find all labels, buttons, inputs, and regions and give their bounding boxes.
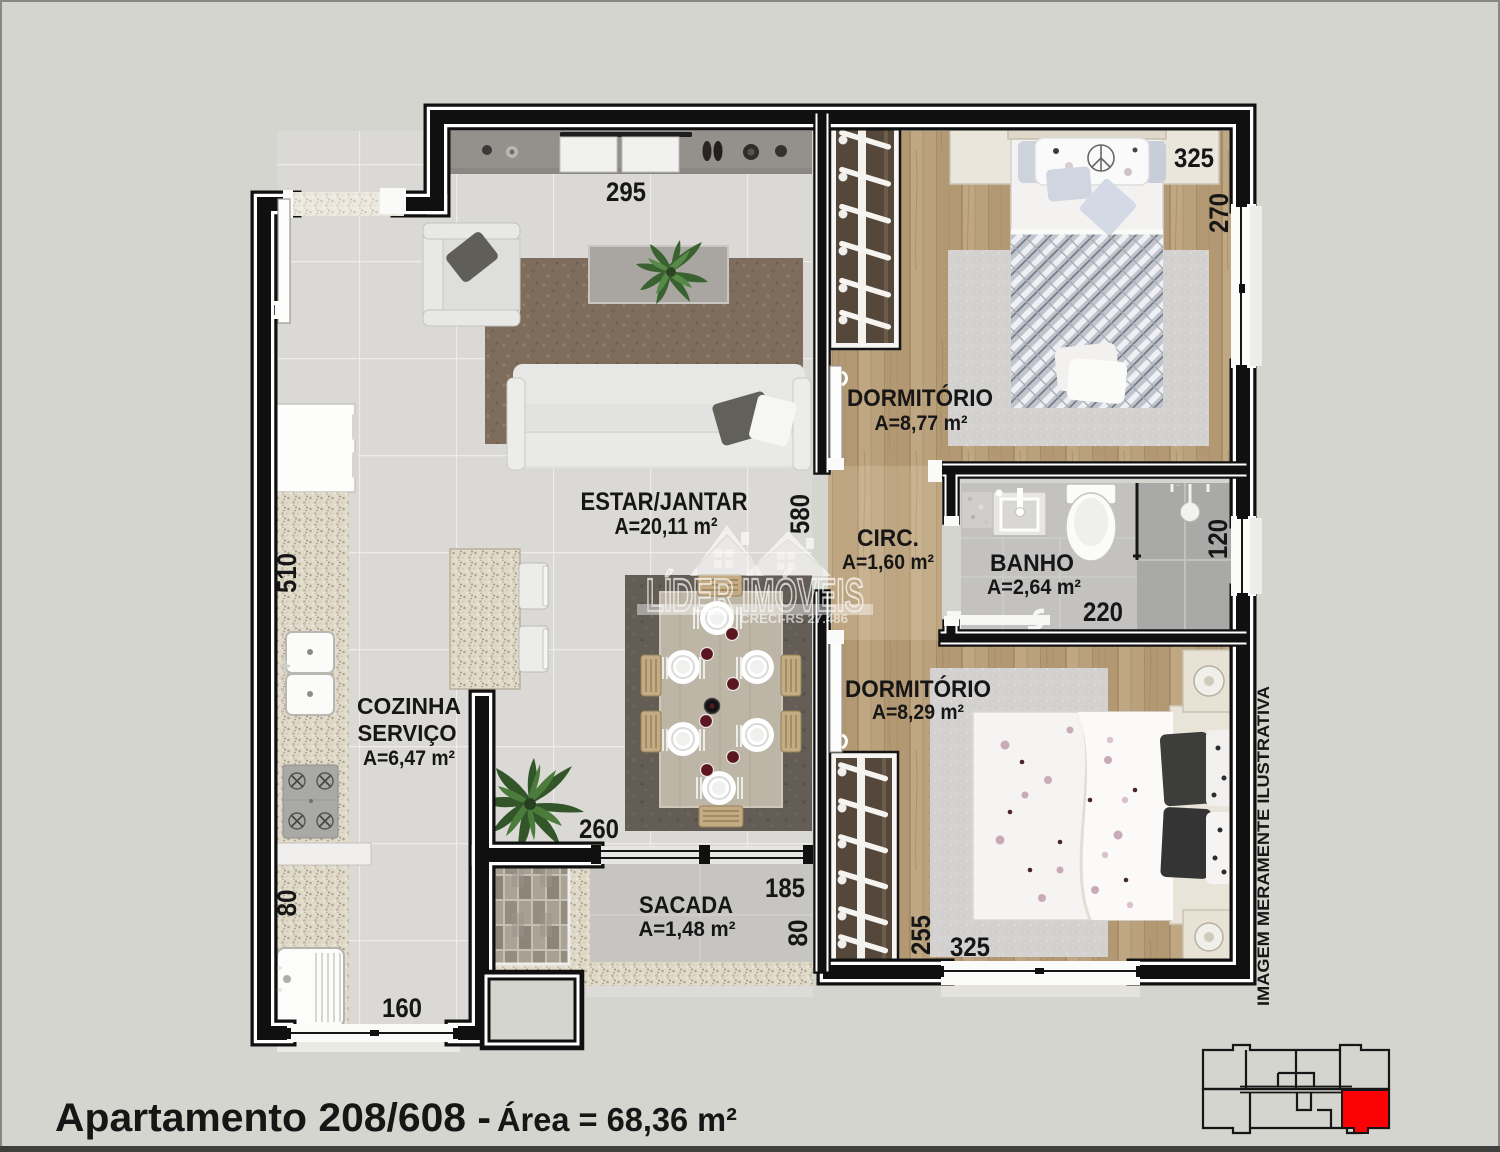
svg-text:A=8,77 m²: A=8,77 m² <box>875 412 968 435</box>
svg-text:DORMITÓRIO: DORMITÓRIO <box>847 384 993 412</box>
svg-text:Área = 68,36 m²: Área = 68,36 m² <box>497 1101 737 1138</box>
svg-text:A=8,29 m²: A=8,29 m² <box>872 701 964 724</box>
svg-text:BANHO: BANHO <box>990 550 1074 577</box>
svg-text:A=2,64 m²: A=2,64 m² <box>987 576 1081 599</box>
svg-text:510: 510 <box>272 553 302 593</box>
svg-text:255: 255 <box>906 915 936 955</box>
svg-text:A=1,48 m²: A=1,48 m² <box>639 918 736 941</box>
svg-text:Apartamento 208/608 -: Apartamento 208/608 - <box>55 1096 491 1140</box>
svg-text:325: 325 <box>950 932 990 962</box>
svg-text:160: 160 <box>382 993 422 1023</box>
svg-text:295: 295 <box>606 177 646 207</box>
svg-text:185: 185 <box>765 873 805 903</box>
svg-text:A=20,11 m²: A=20,11 m² <box>615 513 718 539</box>
svg-text:DORMITÓRIO: DORMITÓRIO <box>845 675 991 703</box>
svg-text:325: 325 <box>1174 143 1214 173</box>
svg-text:ESTAR/JANTAR: ESTAR/JANTAR <box>581 488 748 516</box>
svg-text:CIRC.: CIRC. <box>857 525 919 552</box>
svg-text:580: 580 <box>785 494 815 534</box>
svg-text:COZINHA: COZINHA <box>357 693 461 719</box>
svg-text:IMAGEM MERAMENTE ILUSTRATIVA: IMAGEM MERAMENTE ILUSTRATIVA <box>1254 686 1273 1006</box>
svg-text:120: 120 <box>1203 519 1233 559</box>
svg-text:SACADA: SACADA <box>639 892 733 919</box>
svg-text:CRECI-RS 27.486: CRECI-RS 27.486 <box>740 611 848 626</box>
svg-text:80: 80 <box>272 890 302 917</box>
svg-text:260: 260 <box>579 814 619 844</box>
svg-text:220: 220 <box>1083 597 1123 627</box>
svg-text:SERVIÇO: SERVIÇO <box>358 720 457 746</box>
svg-text:270: 270 <box>1204 193 1234 233</box>
svg-text:A=6,47 m²: A=6,47 m² <box>363 747 455 770</box>
svg-text:80: 80 <box>783 920 813 947</box>
